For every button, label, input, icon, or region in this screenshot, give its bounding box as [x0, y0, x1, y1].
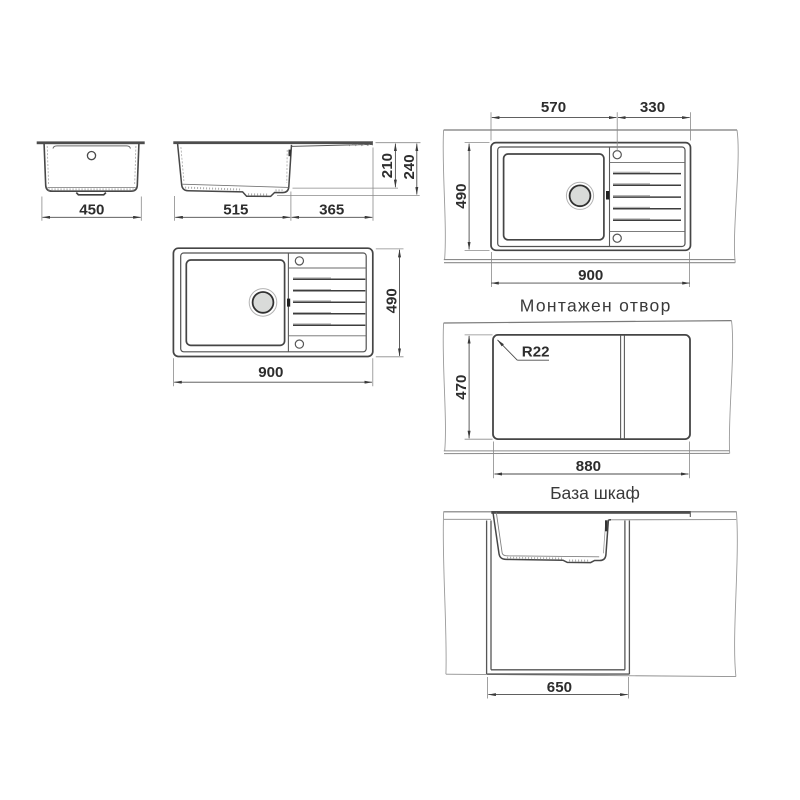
svg-text:490: 490 — [453, 184, 470, 209]
svg-text:База шкаф: База шкаф — [550, 483, 640, 503]
svg-text:365: 365 — [319, 202, 344, 219]
svg-text:570: 570 — [541, 99, 566, 116]
svg-text:Монтажен отвор: Монтажен отвор — [520, 295, 672, 315]
svg-text:330: 330 — [640, 99, 665, 116]
svg-text:900: 900 — [578, 267, 603, 284]
svg-text:900: 900 — [258, 364, 283, 381]
svg-text:450: 450 — [79, 202, 104, 219]
svg-text:490: 490 — [383, 288, 400, 313]
svg-text:650: 650 — [547, 679, 572, 696]
svg-text:210: 210 — [379, 153, 396, 178]
svg-text:880: 880 — [576, 458, 601, 475]
svg-text:515: 515 — [223, 202, 248, 219]
svg-text:470: 470 — [453, 375, 470, 400]
svg-text:R22: R22 — [522, 343, 550, 360]
svg-text:240: 240 — [401, 154, 418, 179]
